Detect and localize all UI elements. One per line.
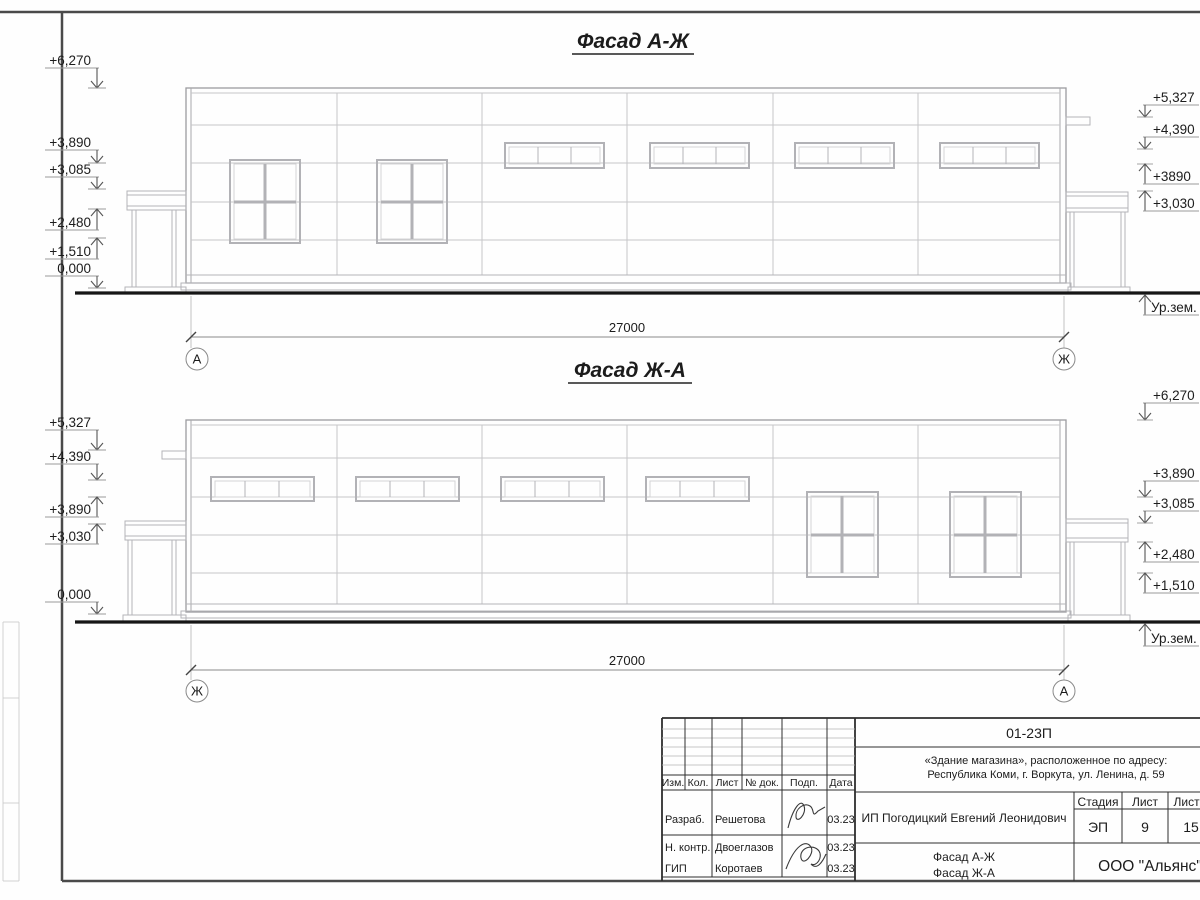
col-kol: Кол. — [688, 777, 709, 789]
svg-text:+6,270: +6,270 — [1153, 388, 1195, 403]
svg-text:+3,890: +3,890 — [49, 502, 91, 517]
window-strip — [650, 143, 749, 168]
svg-text:0,000: 0,000 — [57, 587, 91, 602]
col-izm: Изм. — [662, 777, 685, 789]
elevation-mark: +5,327 — [1137, 90, 1199, 117]
facade-title: Фасад Ж-А — [574, 359, 686, 382]
porch-left — [125, 191, 186, 293]
svg-text:+3,890: +3,890 — [49, 135, 91, 150]
drawing-sheet: Фасад А-Ж — [0, 0, 1200, 900]
elevation-mark: +3,085 — [1137, 496, 1199, 523]
elevation-mark: +3,030 — [1137, 191, 1199, 211]
stage-label: Стадия — [1078, 795, 1119, 809]
window-large — [377, 160, 447, 243]
svg-text:+1,510: +1,510 — [49, 244, 91, 259]
svg-text:+2,480: +2,480 — [1153, 547, 1195, 562]
facade-title: Фасад А-Ж — [577, 30, 690, 53]
window-strip — [940, 143, 1039, 168]
window-strip — [795, 143, 894, 168]
svg-text:+3,030: +3,030 — [49, 529, 91, 544]
client-name: ИП Погодицкий Евгений Леонидович — [861, 811, 1066, 825]
roof-ledge — [1066, 117, 1090, 125]
sheet-label: Лист — [1132, 795, 1159, 809]
svg-text:Ж: Ж — [191, 684, 203, 699]
elevation-mark: 0,000 — [45, 587, 106, 614]
svg-text:+3,085: +3,085 — [49, 162, 91, 177]
drawing-title-line1: Фасад А-Ж — [933, 850, 995, 864]
grid-bubble: Ж — [1053, 348, 1075, 370]
elevation-mark: 0,000 — [45, 261, 106, 288]
elevation-mark: +1,510 — [45, 238, 106, 259]
window-strip — [505, 143, 604, 168]
roof-ledge — [162, 451, 186, 459]
window-strip — [646, 477, 749, 501]
elevation-mark: +3,030 — [45, 524, 106, 544]
window-strip — [501, 477, 604, 501]
sheets-label: Листов — [1174, 795, 1200, 809]
col-doc: № док. — [745, 777, 779, 789]
svg-text:А: А — [1060, 684, 1069, 699]
grid-bubble: А — [1053, 680, 1075, 702]
svg-text:27000: 27000 — [609, 320, 645, 335]
ground-level-label: Ур.зем. — [1139, 295, 1199, 315]
svg-text:+2,480: +2,480 — [49, 215, 91, 230]
svg-text:+3,085: +3,085 — [1153, 496, 1195, 511]
elevation-mark: +3,890 — [45, 497, 106, 517]
elevation-mark: +4,390 — [45, 449, 106, 480]
elevation-mark: +5,327 — [45, 415, 106, 450]
grid-bubble: Ж — [186, 680, 208, 702]
svg-text:27000: 27000 — [609, 653, 645, 668]
elevation-mark: +2,480 — [1137, 542, 1199, 562]
col-podp: Подп. — [790, 777, 818, 789]
window-strip — [211, 477, 314, 501]
elevation-mark: +2,480 — [45, 209, 106, 230]
svg-text:+4,390: +4,390 — [1153, 122, 1195, 137]
col-data: Дата — [829, 777, 852, 789]
svg-text:+3890: +3890 — [1153, 169, 1191, 184]
row-name: Коротаев — [715, 863, 763, 875]
row-name: Решетова — [715, 814, 766, 826]
title-block: 01-23П «Здание магазина», расположенное … — [662, 718, 1200, 881]
elevation-mark: +3890 — [1137, 164, 1199, 184]
svg-text:+5,327: +5,327 — [49, 415, 91, 430]
row-date: 03.23 — [827, 814, 855, 826]
margin-strip — [3, 622, 19, 881]
svg-text:0,000: 0,000 — [57, 261, 91, 276]
svg-text:+5,327: +5,327 — [1153, 90, 1195, 105]
svg-text:+3,030: +3,030 — [1153, 196, 1195, 211]
row-role: ГИП — [665, 863, 687, 875]
facade-zh-a: Фасад Ж-А — [45, 359, 1200, 702]
organization-name: ООО "Альянс" — [1098, 858, 1200, 875]
object-address-line1: «Здание магазина», расположенное по адре… — [925, 755, 1168, 767]
svg-text:А: А — [193, 352, 202, 367]
window-large — [950, 492, 1021, 577]
stage-value: ЭП — [1088, 819, 1108, 835]
sheet-number: 9 — [1141, 819, 1149, 835]
svg-text:Ур.зем.: Ур.зем. — [1151, 300, 1197, 315]
porch-right — [1066, 519, 1130, 622]
window-strip — [356, 477, 459, 501]
elevation-mark: +1,510 — [1137, 573, 1199, 593]
signature-scribble — [786, 844, 826, 869]
window-large — [230, 160, 300, 243]
porch-right — [1066, 192, 1130, 293]
ground-level-label: Ур.зем. — [1139, 624, 1199, 646]
dimension: 27000 — [186, 625, 1069, 680]
row-role: Н. контр. — [665, 842, 710, 854]
facade-a-zh: Фасад А-Ж — [45, 30, 1200, 370]
svg-text:Ур.зем.: Ур.зем. — [1151, 631, 1197, 646]
object-address-line2: Республика Коми, г. Воркута, ул. Ленина,… — [927, 769, 1164, 781]
row-name: Двоеглазов — [715, 842, 774, 854]
doc-number: 01-23П — [1006, 725, 1052, 741]
grid-bubble: А — [186, 348, 208, 370]
elevation-mark: +6,270 — [45, 53, 106, 88]
row-date: 03.23 — [827, 863, 855, 875]
drawing-title-line2: Фасад Ж-А — [933, 866, 995, 880]
dimension: 27000 — [186, 296, 1069, 348]
svg-text:+4,390: +4,390 — [49, 449, 91, 464]
row-date: 03.23 — [827, 842, 855, 854]
elevation-mark: +3,890 — [45, 135, 106, 163]
col-list: Лист — [716, 777, 739, 789]
elevation-mark: +3,085 — [45, 162, 106, 189]
elevation-mark: +6,270 — [1137, 388, 1199, 420]
window-large — [807, 492, 878, 577]
svg-text:+1,510: +1,510 — [1153, 578, 1195, 593]
sheets-total: 15 — [1183, 819, 1199, 835]
svg-text:+6,270: +6,270 — [49, 53, 91, 68]
porch-left — [123, 521, 186, 622]
signature-scribble — [788, 803, 825, 828]
elevation-mark: +4,390 — [1137, 122, 1199, 149]
svg-text:+3,890: +3,890 — [1153, 466, 1195, 481]
row-role: Разраб. — [665, 814, 705, 826]
elevation-mark: +3,890 — [1137, 466, 1199, 497]
svg-text:Ж: Ж — [1058, 352, 1070, 367]
